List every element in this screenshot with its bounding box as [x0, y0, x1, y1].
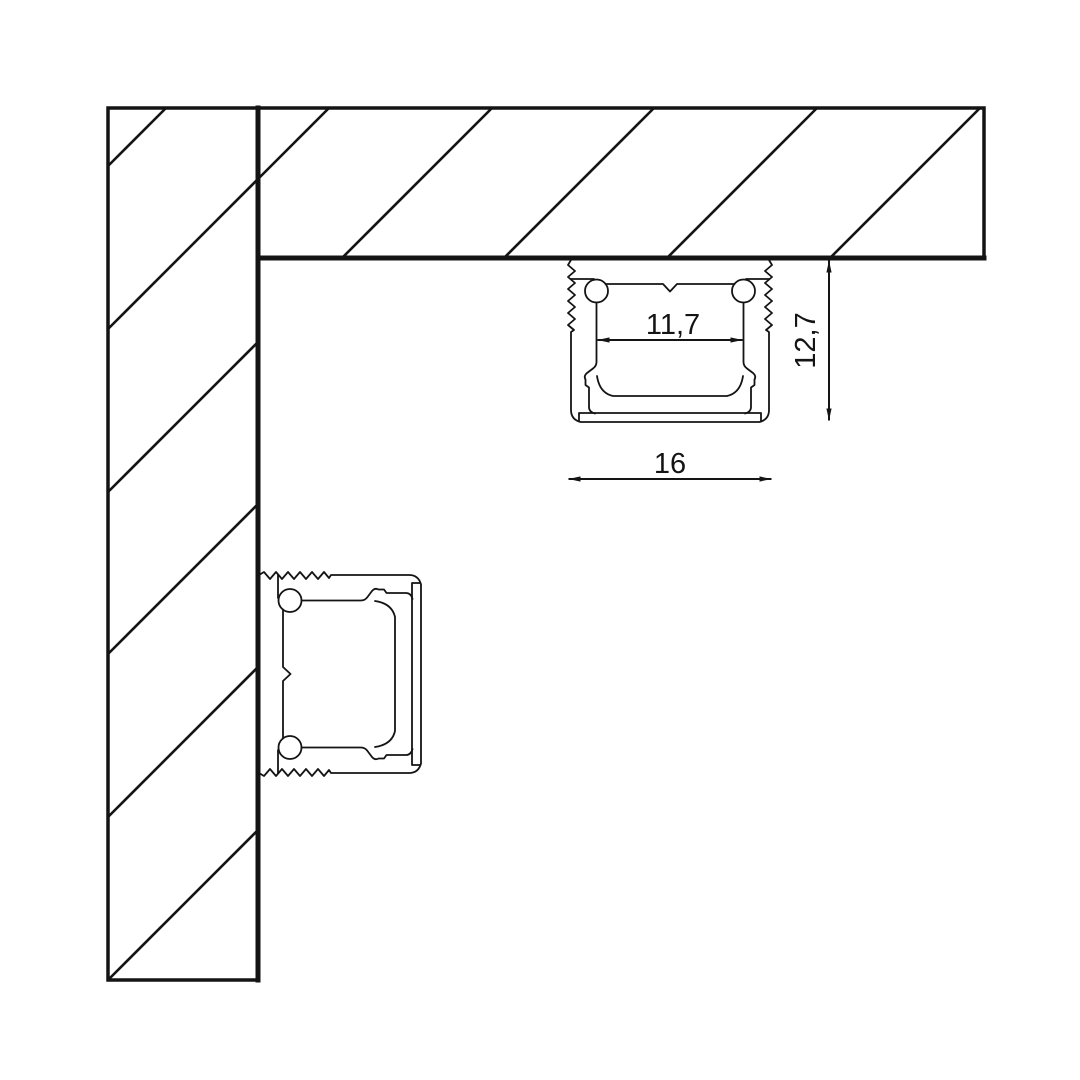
ceiling-outline	[258, 108, 984, 258]
wall-section	[108, 108, 258, 980]
wall-outline	[108, 108, 258, 980]
dim-outer-width-label: 16	[654, 448, 686, 480]
dim-height-label: 12,7	[790, 312, 822, 368]
diagram-canvas: 11,7 12,7 16	[0, 0, 1080, 1080]
dim-inner-width-label: 11,7	[646, 309, 700, 341]
ceiling-section	[258, 108, 984, 258]
profile-mounting-diagram: 11,7 12,7 16	[0, 0, 1080, 1080]
